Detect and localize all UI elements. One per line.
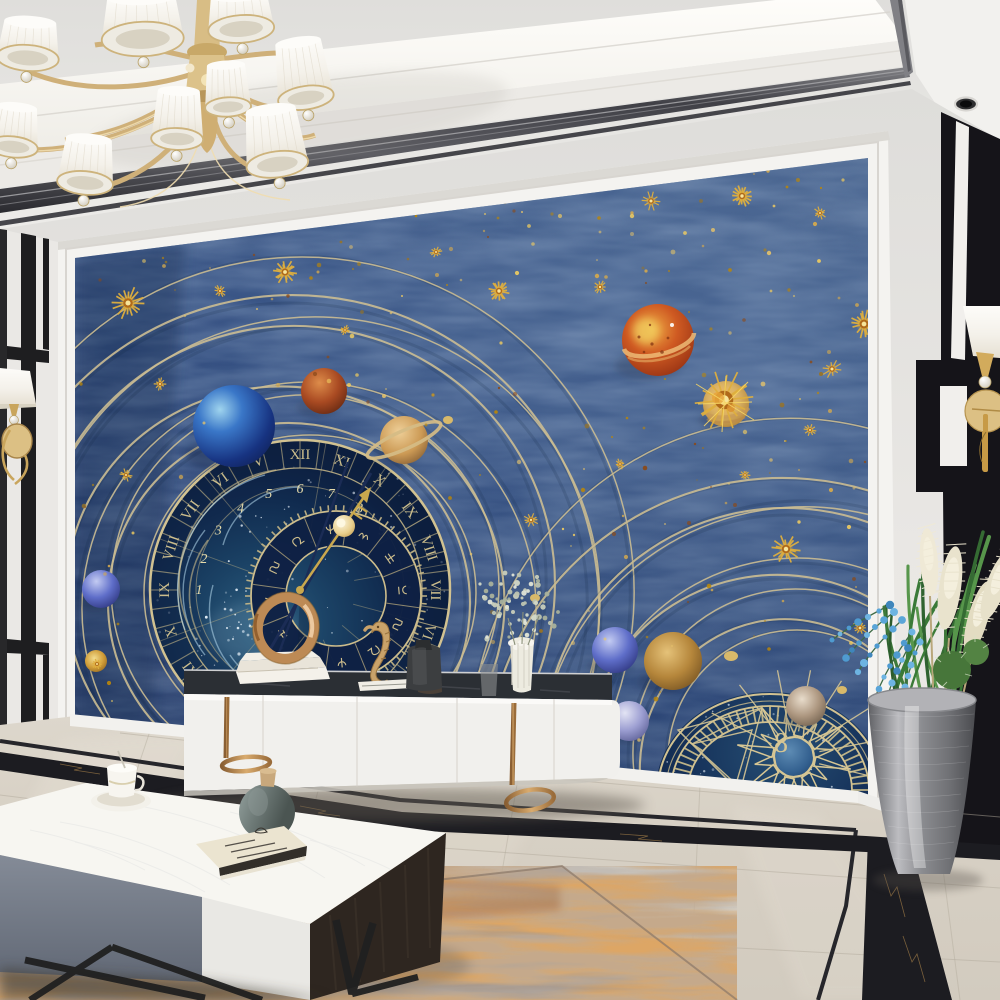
- svg-text:5: 5: [265, 487, 272, 502]
- svg-text:8: 8: [774, 728, 788, 759]
- svg-text:1: 1: [196, 583, 203, 598]
- svg-text:4: 4: [237, 501, 244, 516]
- svg-text:XII: XII: [290, 447, 311, 463]
- svg-text:6: 6: [297, 482, 304, 497]
- svg-text:IX: IX: [157, 582, 173, 598]
- svg-text:3: 3: [214, 524, 222, 539]
- svg-text:VII: VII: [427, 580, 443, 601]
- svg-text:2: 2: [200, 552, 207, 567]
